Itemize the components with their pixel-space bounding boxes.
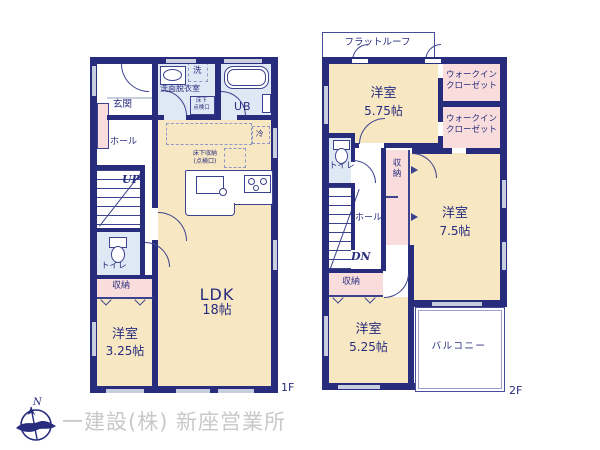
window: [273, 240, 277, 270]
closet-handle-line: [386, 196, 398, 198]
window: [425, 59, 441, 63]
window: [352, 59, 368, 63]
bathtub: [224, 66, 269, 89]
window: [224, 59, 262, 63]
bedroom525-size: 5.25帖: [329, 340, 408, 356]
wall-segment: [97, 228, 140, 232]
wall-segment: [186, 115, 221, 120]
door-arc-bedroom525: [384, 273, 409, 298]
floor2-label: 2F: [509, 384, 522, 398]
washroom-label: 洗面脱衣室: [160, 84, 200, 94]
stairs-down-label: DN: [351, 250, 371, 264]
wall-segment: [322, 57, 507, 64]
window: [106, 389, 144, 393]
compass-north-label: N: [32, 397, 43, 408]
washbasin-bowl: [163, 69, 182, 81]
wall-segment: [381, 148, 386, 271]
wall-segment: [97, 165, 145, 170]
burner: [248, 178, 255, 185]
sliding-door-mark: [411, 166, 418, 174]
window: [92, 322, 96, 356]
window: [166, 59, 196, 63]
fridge-label: 冷: [256, 129, 264, 139]
bedroom75-name: 洋室: [410, 206, 500, 223]
washer-label: 洗: [193, 66, 202, 77]
kitchen-counter-wing: [185, 203, 235, 216]
kitchen-sink: [196, 176, 224, 194]
bedroom75-size: 7.5帖: [410, 224, 500, 240]
bedroom525-name: 洋室: [329, 322, 408, 339]
bath-label: UB: [234, 100, 252, 114]
window: [176, 389, 210, 393]
company-name: 一建設(株) 新座営業所: [62, 409, 286, 436]
toilet-label-1f: トイレ: [101, 261, 127, 272]
flat-roof-label: フラットルーフ: [322, 37, 433, 49]
burner: [260, 178, 267, 185]
bath-counter: [262, 94, 271, 113]
bedroom575-name: 洋室: [329, 86, 438, 103]
window: [218, 389, 254, 393]
wall-segment: [384, 143, 438, 148]
window: [432, 302, 482, 306]
bedroom-size-1f: 3.25帖: [97, 344, 153, 360]
storage-label-2f: 収納: [342, 277, 360, 289]
bathtub-inner: [227, 69, 266, 86]
wall-segment: [97, 275, 153, 279]
window: [273, 128, 277, 158]
window: [502, 242, 506, 270]
wall-segment: [408, 245, 414, 390]
balcony-label: バルコニー: [415, 341, 503, 353]
compass-icon: N: [12, 396, 60, 448]
stairs-up-label: UP: [122, 173, 140, 187]
ldk-size: 18帖: [175, 303, 259, 320]
stove: [244, 175, 271, 193]
door-arc-toilet-2f: [353, 160, 376, 183]
window: [338, 385, 380, 389]
burner: [253, 185, 259, 191]
wall-segment: [466, 148, 500, 154]
floorplan-canvas: 玄関 ホール UP トイレ 収納 洋室 3.25帖 洗面脱衣室 洗 床下 点検口…: [0, 0, 600, 450]
hall-label-2f: ホール: [355, 213, 382, 225]
window: [92, 66, 96, 96]
wic-bottom-label: ウォークイン クローゼット: [443, 114, 500, 136]
entrance-label: 玄関: [113, 99, 132, 111]
window: [502, 180, 506, 208]
washbasin: [160, 66, 186, 85]
underfloor-storage-label: 床下収納 (点検口): [188, 150, 222, 166]
wall-segment: [443, 101, 500, 107]
underfloor-hatch-label: 床下 点検口: [190, 98, 213, 113]
wic-top-label: ウォークイン クローゼット: [443, 70, 500, 92]
wall-segment: [107, 115, 152, 120]
closet-strip-label: 収納: [390, 158, 401, 179]
toilet-label-2f: トイレ: [329, 161, 355, 172]
window: [324, 86, 328, 124]
hall-label-1f: ホール: [110, 137, 137, 149]
floor1-label: 1F: [281, 381, 294, 395]
shoe-cabinet: [97, 103, 109, 149]
wall-segment: [329, 269, 383, 273]
faucet: [219, 188, 227, 196]
wall-segment: [152, 64, 158, 208]
bedroom-name-1f: 洋室: [97, 327, 153, 344]
window: [324, 316, 328, 356]
storage-label-1f: 収納: [112, 281, 130, 293]
bedroom575-size: 5.75帖: [329, 104, 438, 120]
